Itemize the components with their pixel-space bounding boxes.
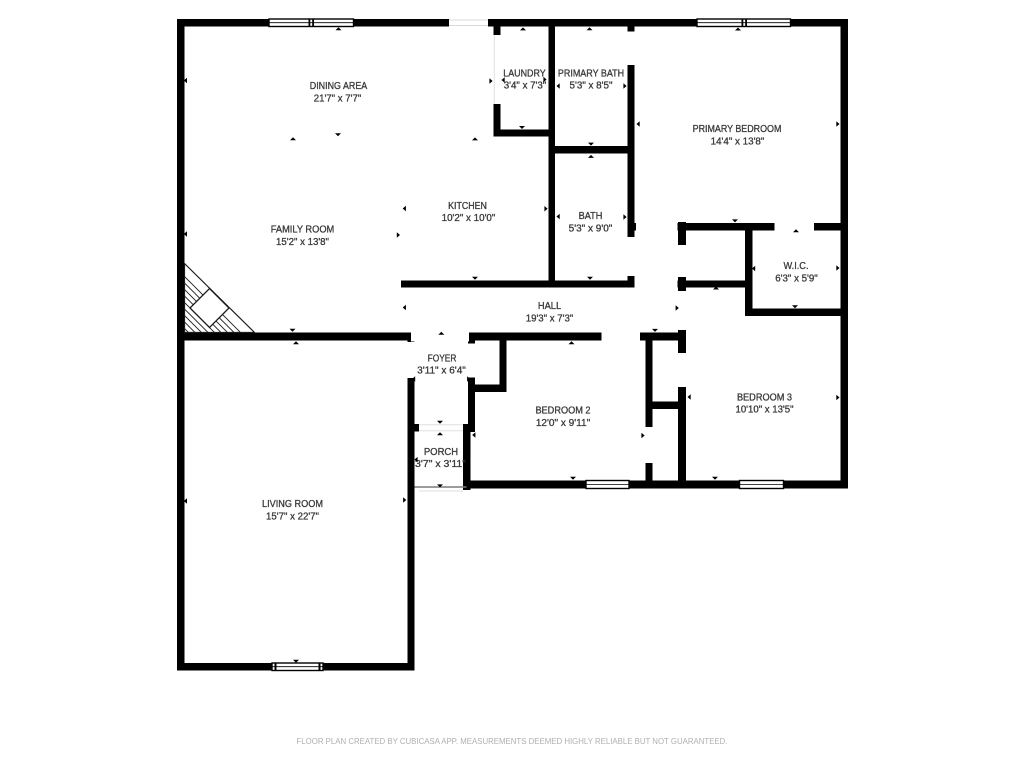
svg-text:3'11" x 6'4": 3'11" x 6'4" bbox=[417, 366, 466, 377]
svg-text:5'3" x 8'5": 5'3" x 8'5" bbox=[570, 81, 613, 92]
svg-text:KITCHEN: KITCHEN bbox=[448, 201, 487, 212]
svg-text:14'4" x 13'8": 14'4" x 13'8" bbox=[711, 136, 765, 147]
svg-text:3'7" x 3'11": 3'7" x 3'11" bbox=[415, 459, 466, 470]
svg-text:FAMILY ROOM: FAMILY ROOM bbox=[271, 225, 335, 236]
svg-text:15'2" x 13'8": 15'2" x 13'8" bbox=[276, 237, 329, 248]
svg-text:FOYER: FOYER bbox=[428, 353, 457, 364]
svg-text:19'3" x 7'3": 19'3" x 7'3" bbox=[526, 313, 574, 324]
svg-text:PRIMARY BATH: PRIMARY BATH bbox=[558, 68, 624, 79]
svg-text:HALL: HALL bbox=[538, 301, 562, 312]
svg-text:LAUNDRY: LAUNDRY bbox=[503, 68, 546, 79]
svg-text:LIVING ROOM: LIVING ROOM bbox=[262, 499, 323, 510]
svg-text:15'7" x 22'7": 15'7" x 22'7" bbox=[266, 511, 319, 522]
svg-text:PORCH: PORCH bbox=[424, 447, 458, 458]
svg-text:6'3" x 5'9": 6'3" x 5'9" bbox=[775, 273, 818, 284]
svg-text:BATH: BATH bbox=[579, 211, 603, 222]
svg-text:12'0" x 9'11": 12'0" x 9'11" bbox=[536, 418, 591, 429]
svg-text:BEDROOM 3: BEDROOM 3 bbox=[737, 392, 793, 403]
svg-text:DINING AREA: DINING AREA bbox=[310, 81, 368, 92]
svg-text:5'3" x 9'0": 5'3" x 9'0" bbox=[569, 223, 613, 234]
svg-text:10'2" x 10'0": 10'2" x 10'0" bbox=[442, 213, 496, 224]
svg-text:3'4" x 7'3": 3'4" x 7'3" bbox=[504, 81, 547, 92]
svg-text:W.I.C.: W.I.C. bbox=[784, 261, 809, 272]
svg-text:FLOOR PLAN CREATED BY CUBICASA: FLOOR PLAN CREATED BY CUBICASA APP. MEAS… bbox=[297, 736, 728, 746]
svg-text:PRIMARY BEDROOM: PRIMARY BEDROOM bbox=[693, 124, 782, 135]
svg-text:BEDROOM 2: BEDROOM 2 bbox=[535, 405, 590, 416]
svg-text:21'7" x 7'7": 21'7" x 7'7" bbox=[314, 93, 362, 104]
svg-text:10'10" x 13'5": 10'10" x 13'5" bbox=[736, 405, 794, 416]
